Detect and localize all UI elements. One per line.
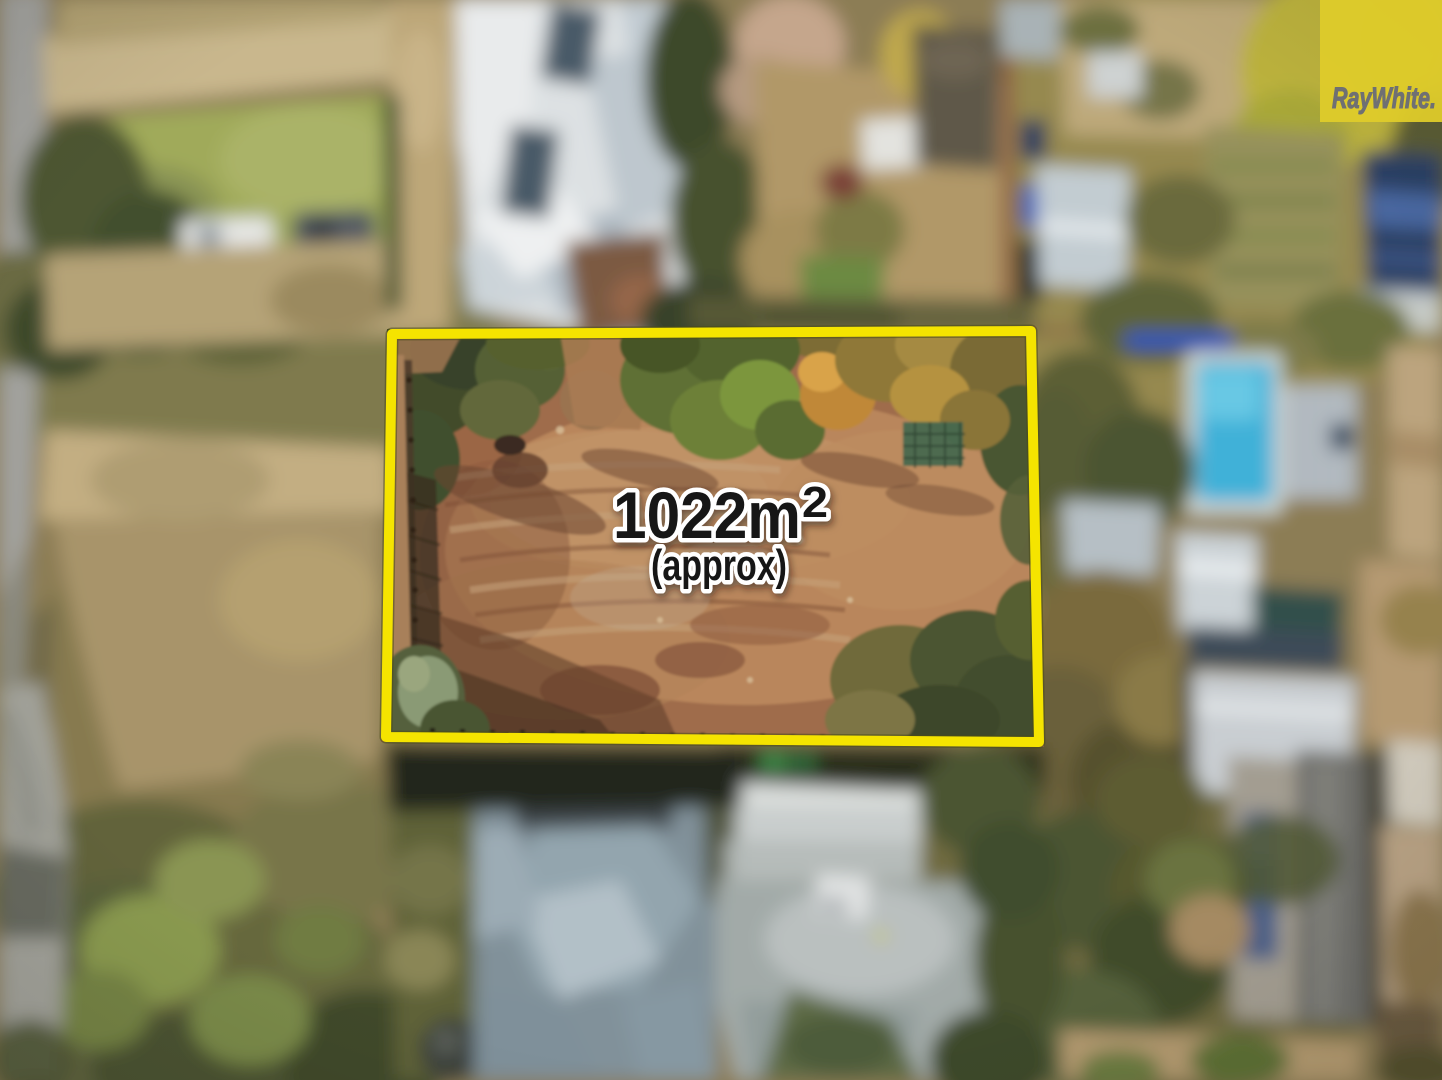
svg-text:(approx): (approx) (651, 541, 787, 590)
svg-text:2: 2 (802, 478, 828, 527)
svg-text:RayWhite.: RayWhite. (1332, 82, 1436, 115)
